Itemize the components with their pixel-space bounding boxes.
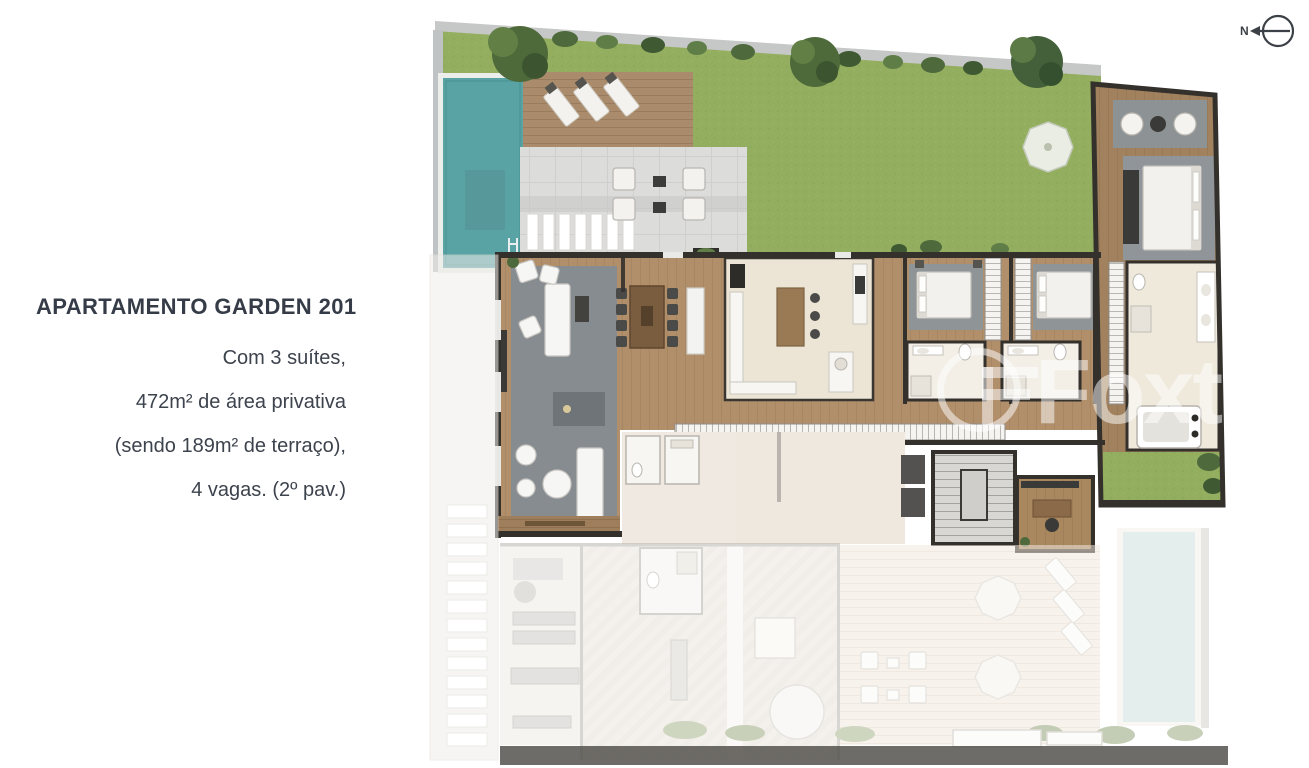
plan-title: APARTAMENTO GARDEN 201 bbox=[36, 294, 346, 320]
page-background: APARTAMENTO GARDEN 201 Com 3 suítes, 472… bbox=[0, 0, 1309, 768]
office bbox=[1017, 477, 1093, 551]
upper-pool bbox=[438, 73, 528, 273]
suite-1 bbox=[909, 258, 1001, 340]
info-panel: APARTAMENTO GARDEN 201 Com 3 suítes, 472… bbox=[36, 294, 346, 512]
plan-detail-parking: 4 vagas. (2º pav.) bbox=[36, 468, 346, 512]
kitchen bbox=[725, 258, 873, 400]
living-balcony bbox=[498, 516, 620, 531]
lower-pool bbox=[1117, 528, 1209, 728]
private-garden bbox=[1101, 452, 1223, 506]
elevator-hall bbox=[622, 432, 905, 544]
stair-core bbox=[901, 452, 1015, 544]
floor-plan: Foxter bbox=[425, 0, 1235, 768]
plan-detail-suites: Com 3 suítes, bbox=[36, 336, 346, 380]
lower-terrace bbox=[840, 545, 1100, 745]
paved-terrace bbox=[520, 147, 747, 253]
gym bbox=[500, 545, 580, 745]
living-room bbox=[501, 256, 617, 534]
plan-detail-terrace: (sendo 189m² de terraço), bbox=[36, 424, 346, 468]
north-label: N bbox=[1240, 24, 1249, 38]
sun-deck bbox=[523, 72, 693, 147]
master-bathroom bbox=[1127, 262, 1219, 450]
plan-detail-area: 472m² de área privativa bbox=[36, 380, 346, 424]
garden-parasol bbox=[1023, 122, 1073, 172]
floor-plan-graphic bbox=[425, 0, 1235, 768]
street-wall bbox=[500, 746, 1228, 765]
north-compass: N bbox=[1234, 2, 1306, 62]
